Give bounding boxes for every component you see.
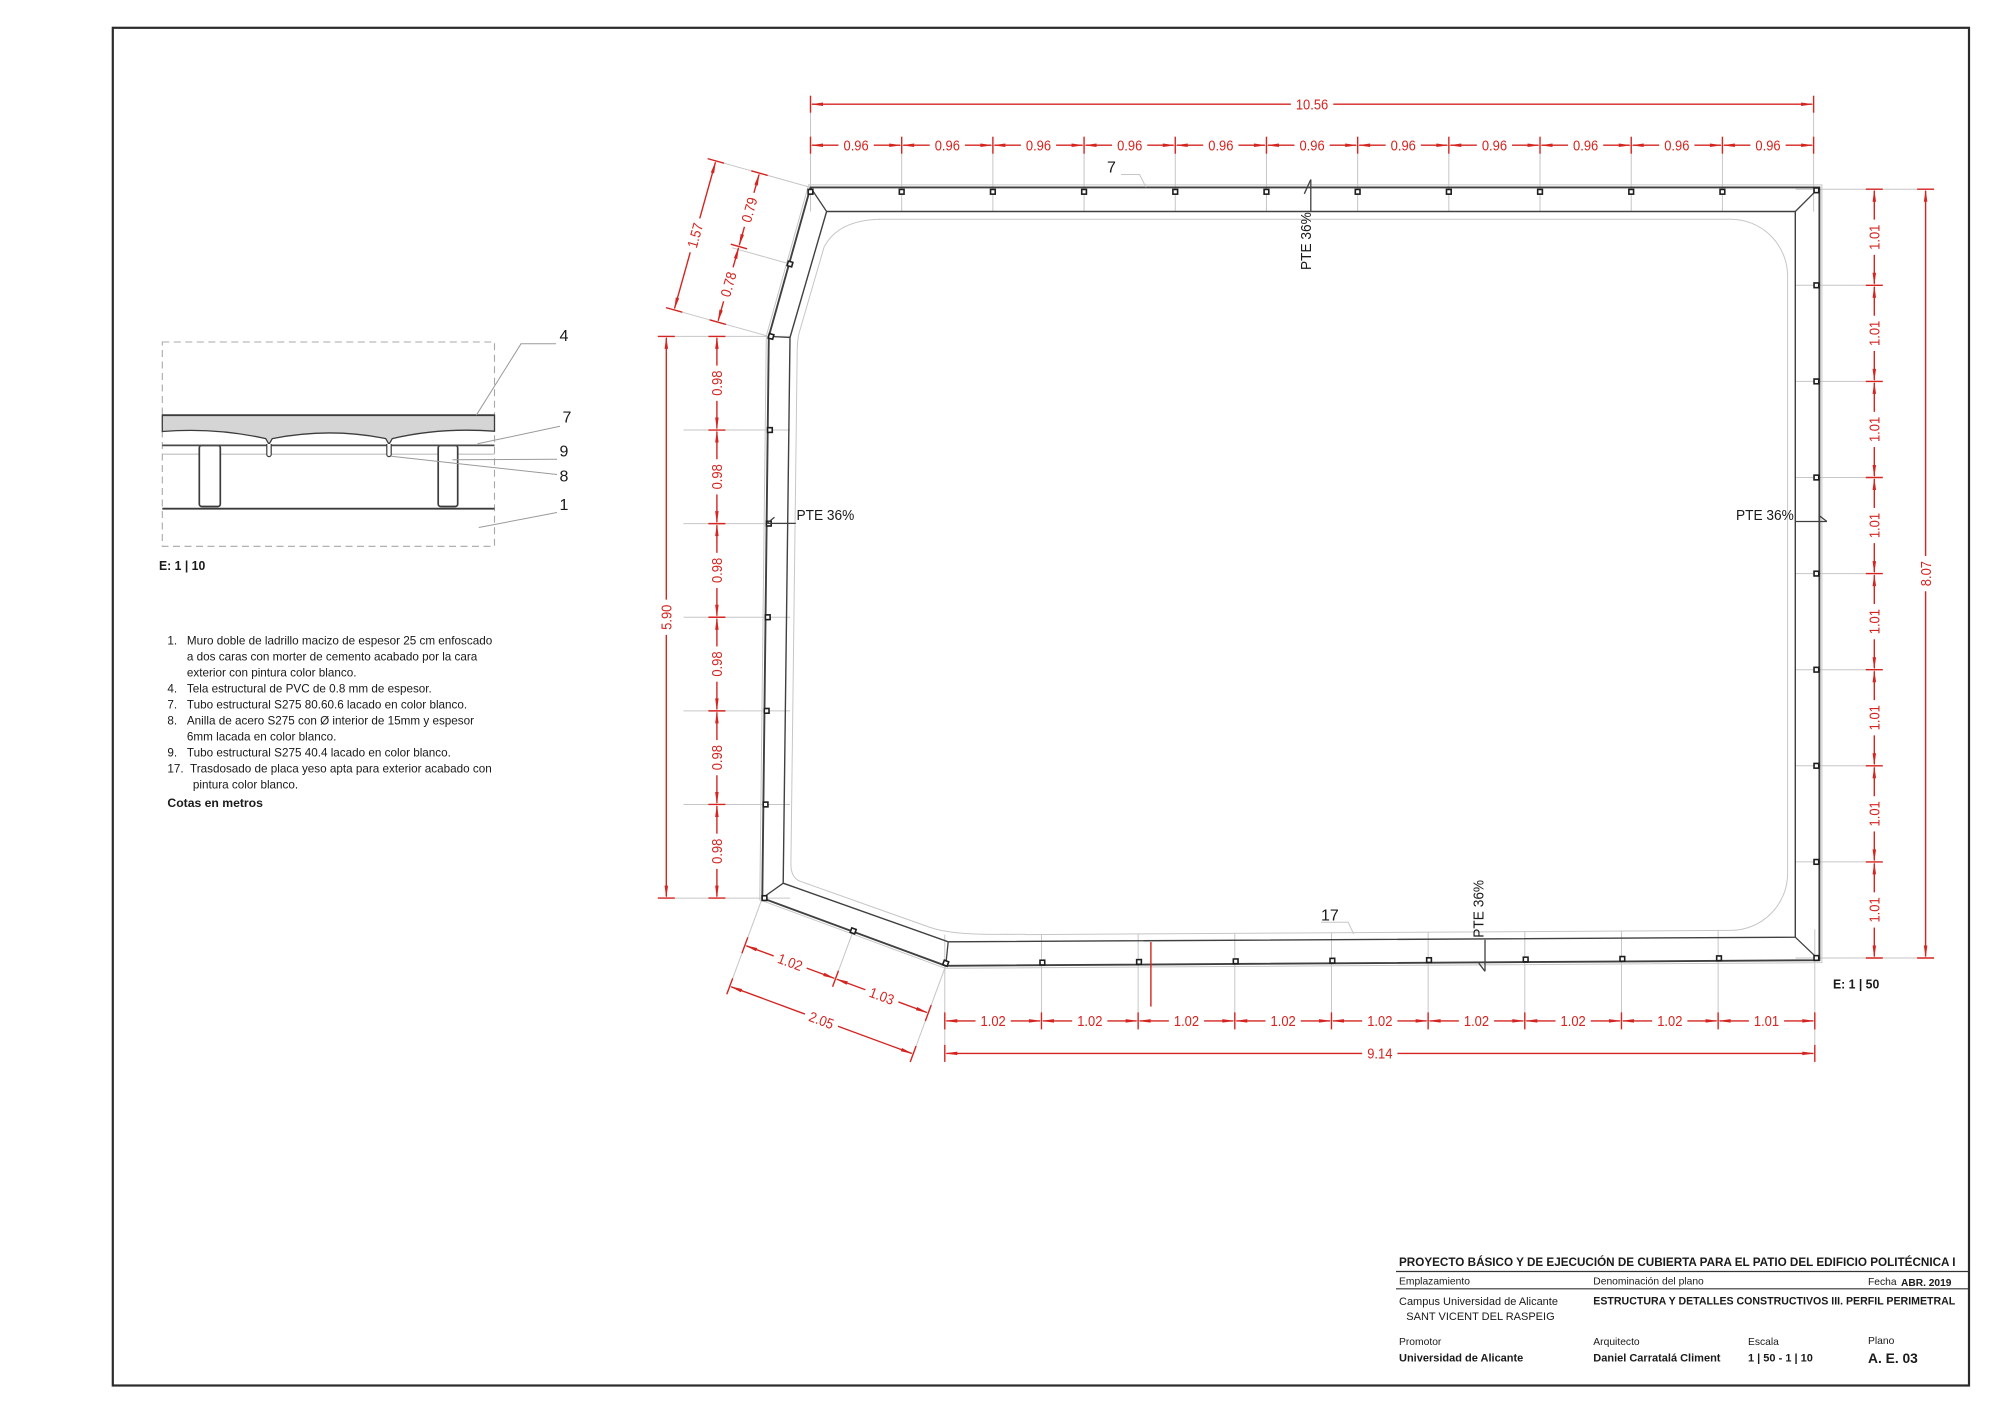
- svg-text:1.01: 1.01: [1867, 321, 1883, 346]
- svg-text:7.: 7.: [167, 699, 177, 712]
- svg-text:Trasdosado de placa yeso apta: Trasdosado de placa yeso apta para exter…: [190, 763, 492, 776]
- svg-text:17.: 17.: [167, 763, 183, 776]
- svg-text:1.01: 1.01: [1867, 897, 1883, 922]
- svg-text:Cotas en metros: Cotas en metros: [167, 796, 263, 810]
- svg-text:1.01: 1.01: [1754, 1014, 1779, 1030]
- svg-text:0.96: 0.96: [1573, 138, 1598, 154]
- svg-text:4: 4: [560, 328, 569, 345]
- svg-text:1.01: 1.01: [1867, 609, 1883, 634]
- svg-text:0.96: 0.96: [1391, 138, 1416, 154]
- svg-text:10.56: 10.56: [1296, 97, 1328, 113]
- svg-text:6mm lacada en color blanco.: 6mm lacada en color blanco.: [187, 731, 336, 744]
- svg-text:1.01: 1.01: [1867, 705, 1883, 730]
- svg-text:Plano: Plano: [1868, 1336, 1895, 1347]
- svg-text:PTE 36%: PTE 36%: [1299, 212, 1315, 270]
- svg-text:1.02: 1.02: [1657, 1014, 1682, 1030]
- svg-text:1.01: 1.01: [1867, 417, 1883, 442]
- svg-text:7: 7: [563, 410, 572, 427]
- svg-text:8: 8: [560, 468, 569, 485]
- svg-text:0.96: 0.96: [1117, 138, 1142, 154]
- svg-text:0.96: 0.96: [935, 138, 960, 154]
- svg-text:PROYECTO BÁSICO Y DE EJECUCIÓN: PROYECTO BÁSICO Y DE EJECUCIÓN DE CUBIER…: [1399, 1256, 1956, 1269]
- svg-text:ESTRUCTURA Y DETALLES CONSTRUC: ESTRUCTURA Y DETALLES CONSTRUCTIVOS III.…: [1593, 1296, 1956, 1308]
- svg-text:Universidad de Alicante: Universidad de Alicante: [1399, 1353, 1523, 1365]
- svg-text:1.02: 1.02: [981, 1014, 1006, 1030]
- svg-text:Fecha: Fecha: [1868, 1277, 1897, 1288]
- svg-text:Emplazamiento: Emplazamiento: [1399, 1276, 1470, 1287]
- svg-text:Escala: Escala: [1748, 1337, 1779, 1348]
- svg-text:0.96: 0.96: [1026, 138, 1051, 154]
- svg-text:Tubo estructural S275 80.60.6: Tubo estructural S275 80.60.6 lacado en …: [187, 699, 467, 712]
- svg-text:1.02: 1.02: [1077, 1014, 1102, 1030]
- svg-text:0.98: 0.98: [710, 371, 726, 396]
- svg-text:1.02: 1.02: [1367, 1014, 1392, 1030]
- svg-text:1.01: 1.01: [1867, 225, 1883, 250]
- svg-text:1: 1: [560, 497, 569, 514]
- svg-text:Tubo estructural S275 40.4 lac: Tubo estructural S275 40.4 lacado en col…: [187, 747, 451, 760]
- svg-text:Promotor: Promotor: [1399, 1337, 1442, 1348]
- svg-text:Campus Universidad de Alicante: Campus Universidad de Alicante: [1399, 1296, 1558, 1308]
- svg-text:1.02: 1.02: [1464, 1014, 1489, 1030]
- svg-text:SANT VICENT DEL RASPEIG: SANT VICENT DEL RASPEIG: [1406, 1311, 1554, 1323]
- svg-text:Tela estructural de PVC de 0.8: Tela estructural de PVC de 0.8 mm de esp…: [187, 683, 432, 696]
- svg-text:1.01: 1.01: [1867, 513, 1883, 538]
- svg-text:PTE 36%: PTE 36%: [1471, 880, 1487, 938]
- svg-text:ABR. 2019: ABR. 2019: [1901, 1278, 1952, 1289]
- svg-text:0.96: 0.96: [1482, 138, 1507, 154]
- svg-text:9.14: 9.14: [1367, 1047, 1392, 1063]
- svg-text:8.: 8.: [167, 715, 177, 728]
- svg-text:1.02: 1.02: [1561, 1014, 1586, 1030]
- svg-text:1.01: 1.01: [1867, 801, 1883, 826]
- svg-text:Anilla de acero S275 con Ø int: Anilla de acero S275 con Ø interior de 1…: [187, 715, 474, 728]
- svg-text:E: 1 | 50: E: 1 | 50: [1833, 977, 1879, 992]
- svg-text:E: 1 | 10: E: 1 | 10: [159, 558, 205, 573]
- svg-text:PTE 36%: PTE 36%: [797, 508, 855, 524]
- svg-text:0.96: 0.96: [1664, 138, 1689, 154]
- svg-text:0.98: 0.98: [710, 839, 726, 864]
- svg-text:0.96: 0.96: [1299, 138, 1324, 154]
- svg-text:Daniel Carratalá Climent: Daniel Carratalá Climent: [1593, 1353, 1720, 1365]
- svg-text:8.07: 8.07: [1919, 561, 1935, 586]
- svg-text:0.96: 0.96: [844, 138, 869, 154]
- svg-text:0.98: 0.98: [710, 651, 726, 676]
- svg-text:1.02: 1.02: [1271, 1014, 1296, 1030]
- svg-text:pintura color blanco.: pintura color blanco.: [193, 779, 298, 792]
- svg-text:A. E. 03: A. E. 03: [1868, 1351, 1918, 1366]
- svg-text:0.98: 0.98: [710, 464, 726, 489]
- svg-text:0.96: 0.96: [1755, 138, 1780, 154]
- svg-text:0.98: 0.98: [710, 745, 726, 770]
- svg-text:PTE 36%: PTE 36%: [1736, 508, 1794, 524]
- svg-text:5.90: 5.90: [659, 605, 675, 630]
- svg-text:Arquitecto: Arquitecto: [1593, 1337, 1640, 1348]
- svg-text:7: 7: [1107, 160, 1116, 177]
- svg-text:a dos caras con morter de ceme: a dos caras con morter de cemento acabad…: [187, 651, 478, 664]
- svg-text:Muro doble de ladrillo macizo: Muro doble de ladrillo macizo de espesor…: [187, 635, 493, 648]
- svg-text:exterior con pintura color bla: exterior con pintura color blanco.: [187, 667, 357, 680]
- svg-text:1 | 50 - 1 | 10: 1 | 50 - 1 | 10: [1748, 1353, 1813, 1365]
- svg-text:Denominación del plano: Denominación del plano: [1593, 1276, 1704, 1287]
- svg-text:9: 9: [560, 443, 569, 460]
- svg-text:1.02: 1.02: [1174, 1014, 1199, 1030]
- svg-text:0.96: 0.96: [1208, 138, 1233, 154]
- svg-text:4.: 4.: [167, 683, 177, 696]
- svg-text:9.: 9.: [167, 747, 177, 760]
- svg-text:0.98: 0.98: [710, 558, 726, 583]
- svg-text:1.: 1.: [167, 635, 177, 648]
